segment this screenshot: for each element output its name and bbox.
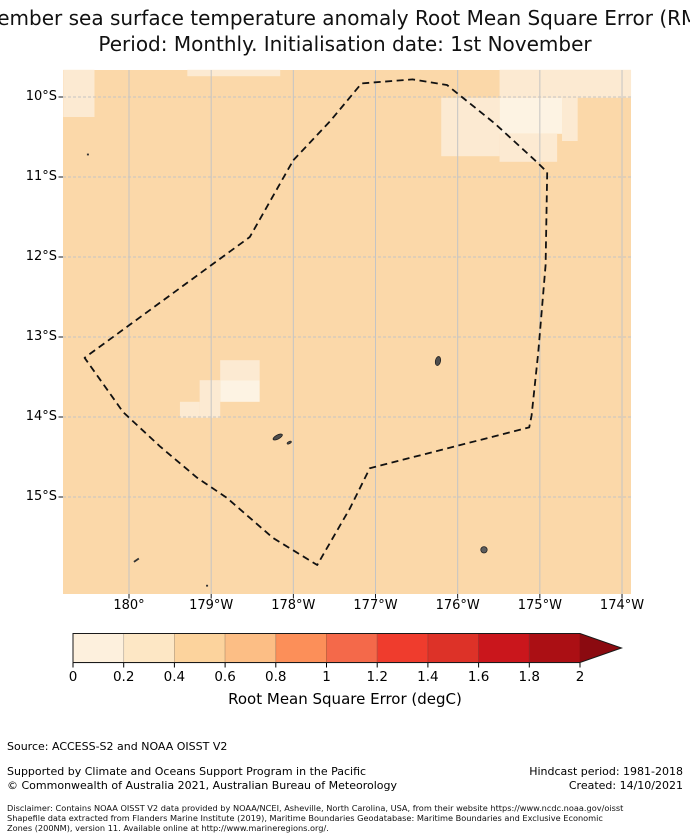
- colorbar-tick-label: 0.4: [164, 669, 185, 685]
- colorbar-segment: [327, 634, 378, 664]
- rmse-patch: [441, 98, 499, 156]
- disclaimer-line3: Zones (200NM), version 11. Available onl…: [7, 823, 690, 833]
- y-tick-label: 12°S: [0, 249, 57, 265]
- supported-by-text: Supported by Climate and Oceans Support …: [7, 765, 366, 778]
- y-tick-label: 11°S: [0, 169, 57, 185]
- colorbar-tick-label: 1: [322, 669, 331, 685]
- hindcast-period-text: Hindcast period: 1981-2018: [529, 765, 683, 778]
- colorbar-label: Root Mean Square Error (degC): [0, 690, 690, 708]
- y-tick-label: 15°S: [0, 489, 57, 505]
- disclaimer-line2: Shapefile data extracted from Flanders M…: [7, 813, 690, 823]
- rmse-patch: [200, 380, 221, 418]
- map-area: [63, 70, 631, 594]
- colorbar-segment: [428, 634, 479, 664]
- colorbar-tick-label: 2: [576, 669, 585, 685]
- figure: December sea surface temperature anomaly…: [0, 0, 690, 839]
- rmse-patch: [562, 98, 578, 141]
- y-tick-label: 10°S: [0, 89, 57, 105]
- rmse-patch: [500, 98, 562, 134]
- rmse-patch: [180, 402, 200, 418]
- y-tick-label: 14°S: [0, 409, 57, 425]
- rmse-patch: [220, 380, 259, 402]
- x-tick-label: 180°: [94, 598, 164, 614]
- colorbar-tick-label: 0.8: [265, 669, 286, 685]
- colorbar-tick-label: 1.8: [519, 669, 540, 685]
- colorbar-segment: [377, 634, 428, 664]
- colorbar-segment: [479, 634, 530, 664]
- disclaimer: Disclaimer: Contains NOAA OISST V2 data …: [7, 803, 690, 833]
- rmse-patch: [500, 134, 558, 162]
- x-tick-label: 174°W: [587, 598, 657, 614]
- colorbar-tick-label: 1.2: [366, 669, 387, 685]
- colorbar-segment: [276, 634, 327, 664]
- colorbar-arrow: [580, 634, 622, 663]
- colorbar-segment: [124, 634, 175, 664]
- colorbar: 00.20.40.60.811.21.41.61.82: [0, 633, 690, 689]
- rmse-patch: [500, 70, 631, 98]
- rmse-patch: [63, 70, 94, 117]
- colorbar-segment: [73, 634, 124, 664]
- colorbar-segment: [225, 634, 276, 664]
- x-tick-label: 179°W: [176, 598, 246, 614]
- island: [206, 585, 208, 587]
- disclaimer-line1: Disclaimer: Contains NOAA OISST V2 data …: [7, 803, 690, 813]
- x-tick-label: 178°W: [258, 598, 328, 614]
- chart-title-line2: Period: Monthly. Initialisation date: 1s…: [0, 31, 690, 57]
- colorbar-tick-label: 0: [69, 669, 78, 685]
- map-canvas: [63, 70, 631, 594]
- copyright-text: © Commonwealth of Australia 2021, Austra…: [7, 779, 397, 792]
- colorbar-tick-label: 0.6: [214, 669, 235, 685]
- chart-title: December sea surface temperature anomaly…: [0, 5, 690, 57]
- colorbar-segment: [529, 634, 580, 664]
- colorbar-tick-label: 0.2: [113, 669, 134, 685]
- x-tick-label: 176°W: [423, 598, 493, 614]
- source-text: Source: ACCESS-S2 and NOAA OISST V2: [7, 740, 227, 753]
- created-date-text: Created: 14/10/2021: [569, 779, 683, 792]
- rmse-patch: [220, 360, 259, 380]
- rmse-patch: [187, 70, 280, 76]
- chart-title-line1: December sea surface temperature anomaly…: [0, 5, 690, 31]
- colorbar-tick-label: 1.4: [417, 669, 438, 685]
- colorbar-tick-label: 1.6: [468, 669, 489, 685]
- x-tick-label: 175°W: [505, 598, 575, 614]
- colorbar-segment: [174, 634, 225, 664]
- x-tick-label: 177°W: [341, 598, 411, 614]
- island: [87, 154, 89, 156]
- y-tick-label: 13°S: [0, 329, 57, 345]
- island: [481, 547, 487, 553]
